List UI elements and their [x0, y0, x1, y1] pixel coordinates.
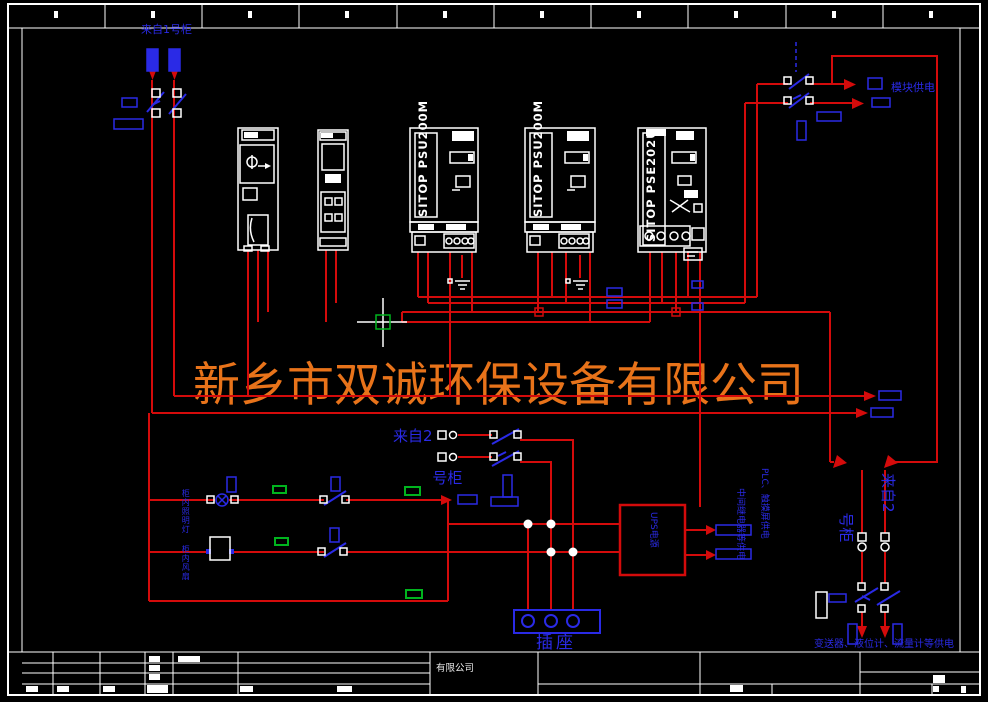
ground-icon — [448, 279, 470, 289]
psu1-model-label: SITOP PSU200M — [417, 100, 430, 217]
title-block-stamps — [26, 656, 966, 693]
psu3-model-label: SITOP PSE202U — [645, 128, 658, 242]
company-title-label: 有限公司 — [436, 664, 474, 675]
psu2-model-label: SITOP PSU200M — [532, 100, 545, 217]
relay-box — [210, 537, 230, 560]
blue-symbols — [114, 42, 902, 644]
drawing-frame — [8, 4, 980, 695]
contactor-device — [318, 130, 348, 250]
motor-breaker-device — [238, 128, 278, 251]
title-block — [8, 652, 980, 694]
ground-icon — [566, 279, 588, 289]
from-cabinet2-right-label: 来自2 号柜 — [835, 473, 898, 542]
devices-white — [152, 77, 889, 618]
cabinet-light-label: 柜内照明灯 — [181, 489, 190, 534]
from-cabinet1-label: 来自1号柜 — [141, 24, 192, 37]
terminal-block-icon — [147, 49, 158, 71]
feeder-list-label: PLC、触摸屏供电 中间继电器等供电 — [734, 468, 770, 560]
socket-label: 插座 — [536, 634, 576, 654]
from-cabinet2-center-label: 来自2 号柜 — [393, 426, 462, 489]
terminal-squares — [152, 77, 889, 612]
lamp-icon — [216, 494, 228, 506]
socket-icon — [514, 610, 600, 633]
transmitter-power-label: 变送器、液位计、流量计等供电 — [814, 639, 954, 651]
crosshair-cursor — [357, 298, 407, 347]
cabinet-fan-label: 柜内风扇 — [181, 545, 190, 581]
schematic-drawing — [0, 0, 988, 702]
module-power-label: 模块供电 — [891, 82, 935, 95]
cad-drawing-canvas: 新乡市双诚环保设备有限公司 — [0, 0, 988, 702]
ups-box-label: UPS电源 — [648, 512, 658, 548]
terminal-block-icon — [169, 49, 180, 71]
